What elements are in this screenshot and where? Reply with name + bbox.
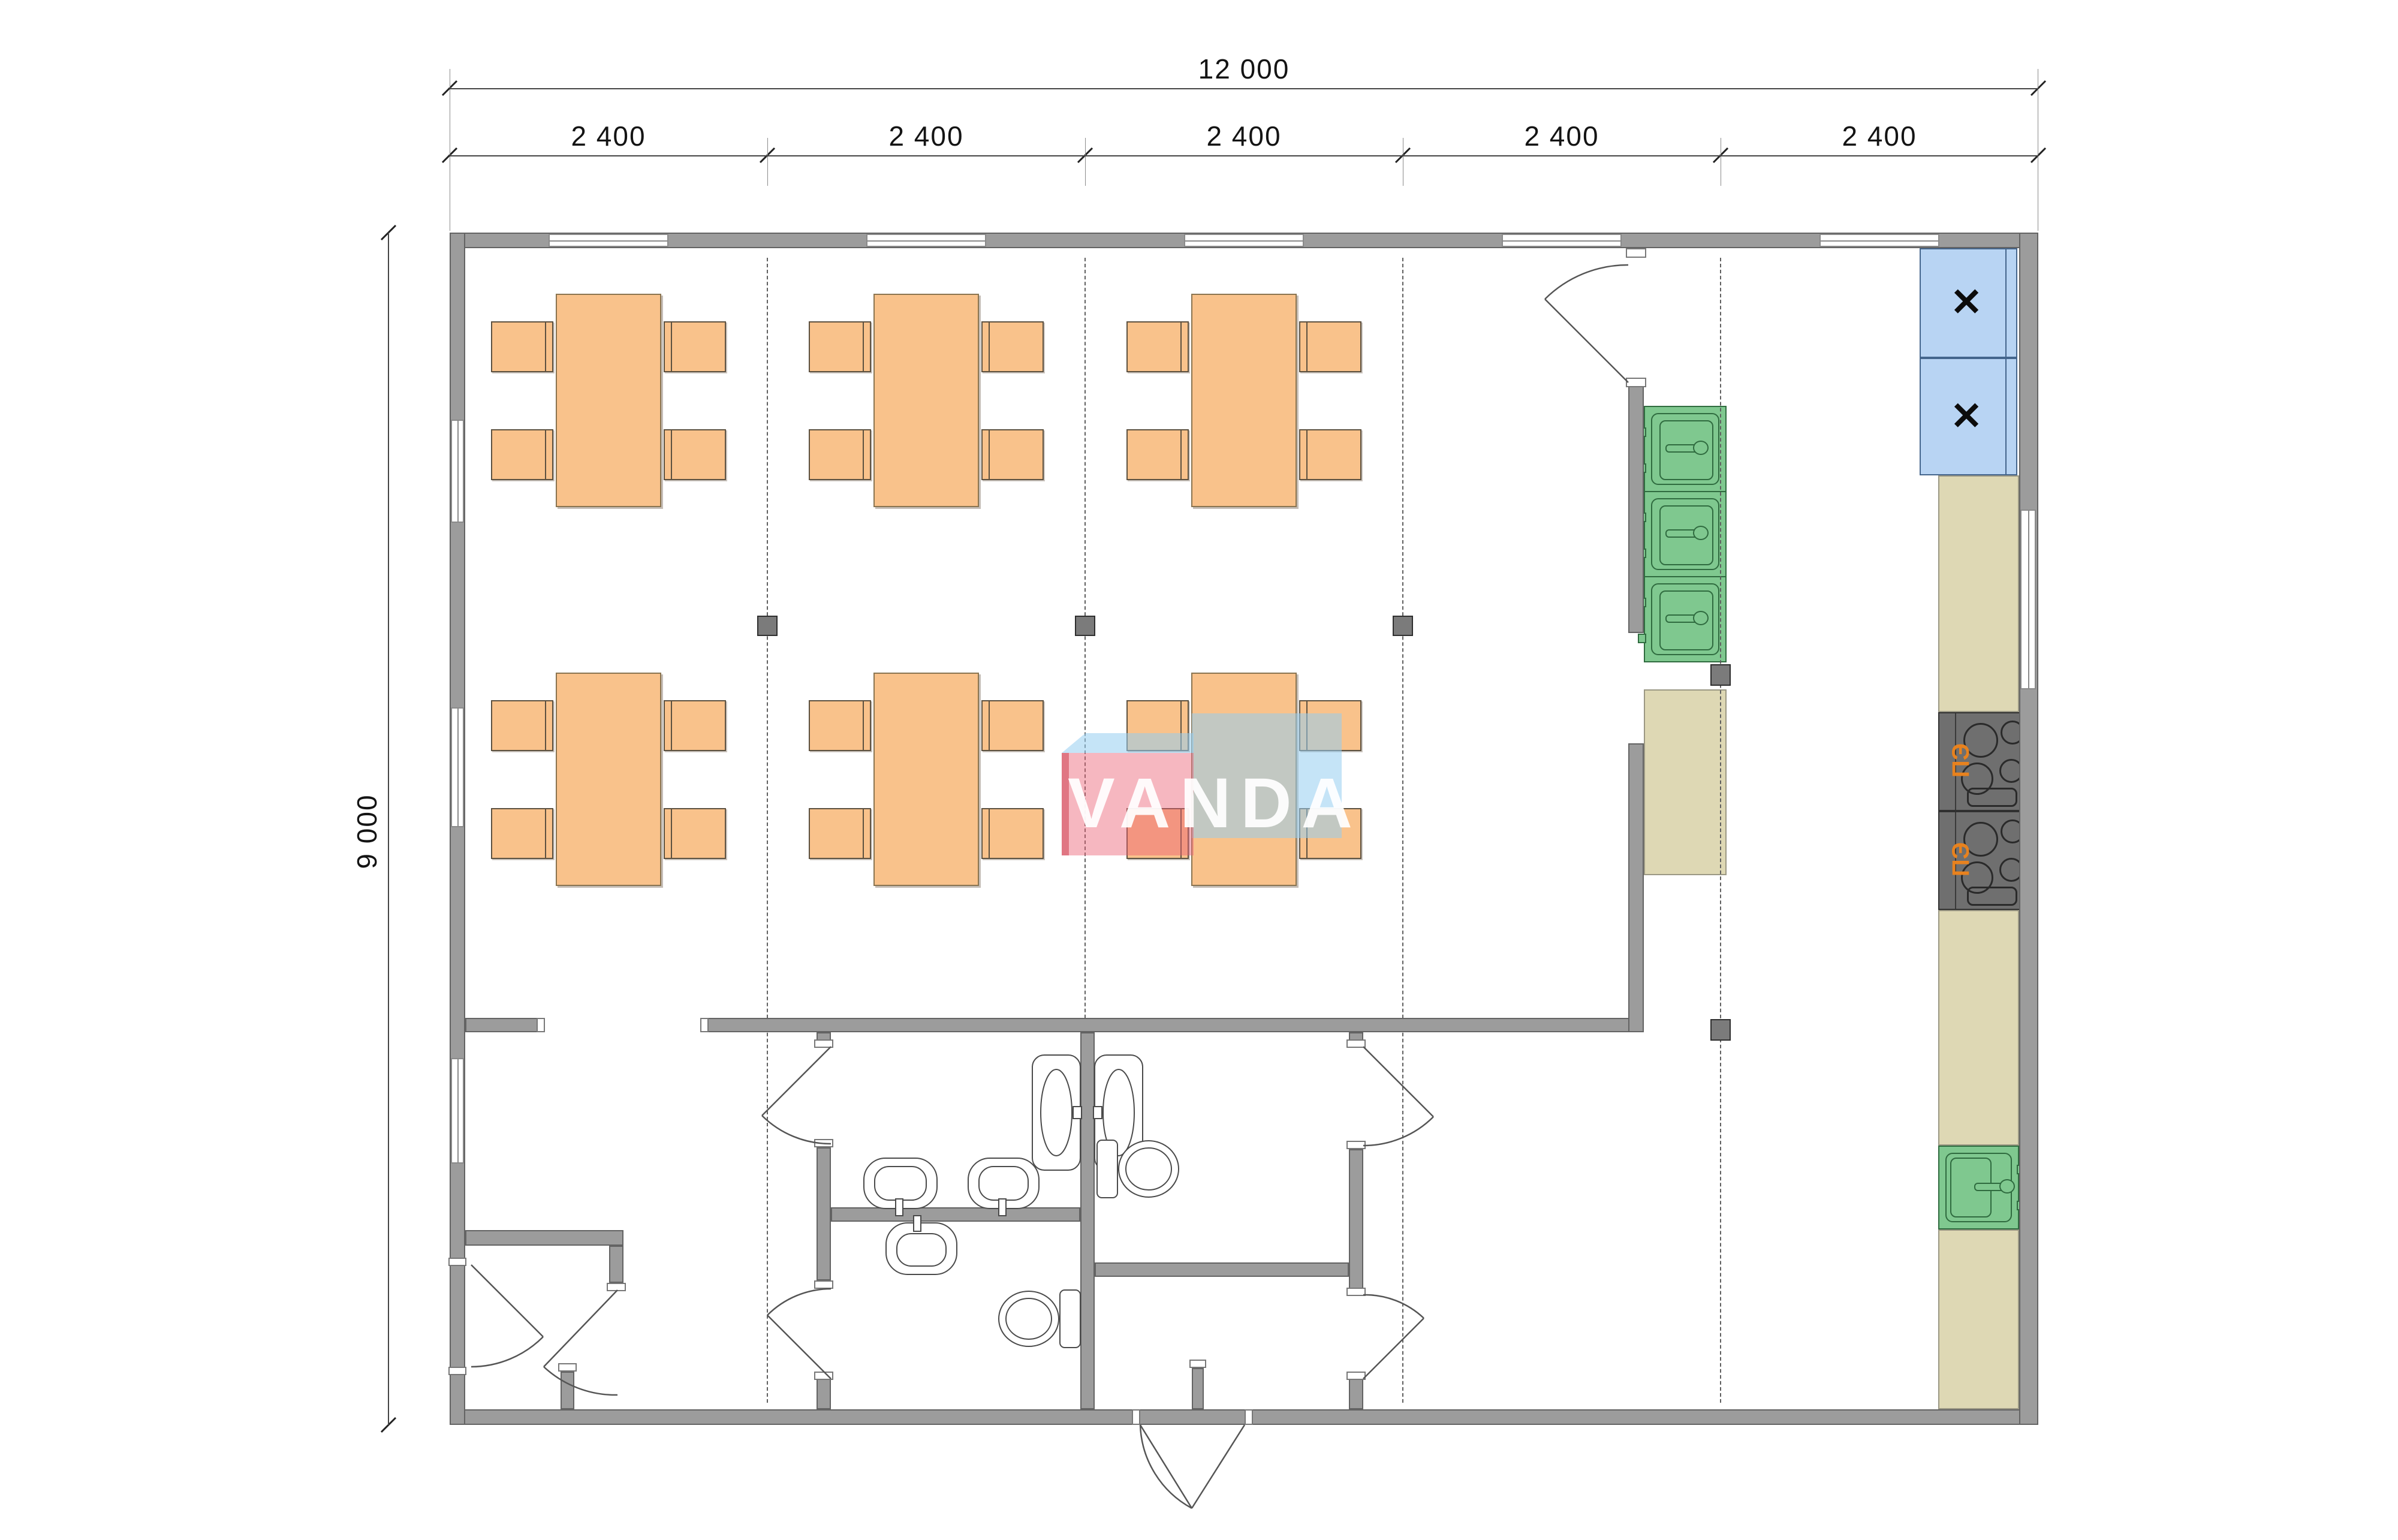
washbasin-right [1095,1055,1143,1170]
bath-left-partition [831,1207,1080,1222]
door-arc-bath-w2 [767,1289,831,1315]
chair [809,321,871,372]
dimension-label-module-4: 2 400 [1472,120,1652,152]
door-jamb-bath-e2a [1346,1288,1366,1296]
window-top-4 [1502,234,1622,247]
door-arc-kitchen [1545,265,1628,299]
chair [981,808,1044,859]
door-jamb-entrance-mullion [1189,1360,1206,1368]
door-jamb-porch-b [448,1367,466,1375]
door-leaf-cloakroom [544,1290,617,1367]
chair [491,700,553,751]
window-top-3 [1184,234,1304,247]
door-jamb-hall-opening-left [537,1018,545,1032]
chair [664,321,726,372]
door-jamb-bath-w1a [814,1039,833,1048]
chair [809,808,871,859]
bath-east-wall-bottom-stub [1349,1379,1363,1409]
dimension-line-total-height [388,233,389,1425]
window-top-1 [549,234,668,247]
chair [664,429,726,480]
column-kitchen-counter [1710,664,1731,686]
floor-plan-canvas: 12 000 2 400 2 400 2 400 2 400 2 400 9 0… [0,0,2398,1540]
column-grid-4 [1393,616,1413,636]
chair [809,429,871,480]
door-jamb-entrance-left [1132,1409,1140,1425]
column-grid-5-south [1710,1019,1731,1041]
chair [1299,429,1361,480]
dimension-label-module-5: 2 400 [1790,120,1969,152]
door-leaf-bath-w1 [762,1047,831,1116]
kitchen-sink-unit [1644,491,1727,577]
cloakroom-wall-horizontal [465,1230,623,1246]
chair [664,700,726,751]
door-jamb-cloakroom [607,1283,626,1291]
extension-line-grid-3 [1085,138,1086,186]
extension-line-grid-2 [767,138,768,186]
chair [491,429,553,480]
kitchen-sink-unit [1644,406,1727,492]
watermark-text: VANDA [1068,758,1331,848]
cabinet-x-icon: ✕ [1942,283,1990,321]
chair [664,808,726,859]
watermark-blue-flap [1062,733,1194,753]
extension-line-right [2038,69,2038,231]
sink-tap-knob-icon [1693,441,1709,455]
extension-line-left [450,69,450,231]
door-arc-porch [471,1337,543,1367]
exterior-wall-right [2019,233,2038,1425]
hall-bottom-wall-stub [465,1018,544,1032]
chair [1299,321,1361,372]
porch-stub-wall [561,1372,574,1409]
washbasin-bowl-icon [1041,1069,1072,1156]
chair [981,429,1044,480]
door-arc-cloakroom [544,1367,617,1395]
exterior-wall-bottom [450,1409,2038,1425]
hall-bottom-wall [701,1018,1644,1032]
chair [1126,321,1189,372]
dimension-label-module-3: 2 400 [1154,120,1334,152]
grid-line-2 [767,258,768,1403]
bath-right-partition [1095,1262,1349,1277]
dining-table [556,294,661,507]
toilet-tank-icon [1060,1290,1080,1348]
door-leaf-bath-e1 [1363,1047,1433,1117]
door-jamb-bath-e1a [1346,1039,1366,1048]
door-arc-bath-e1 [1363,1117,1433,1146]
toilet-bowl-rim-icon [1126,1148,1171,1190]
door-jamb-kitchen-top [1626,248,1646,258]
dining-table [873,294,979,507]
kitchen-counter-east-3 [1938,1229,2019,1409]
door-leaf-bath-e2 [1363,1318,1424,1379]
kitchen-counter-east-2 [1938,910,2019,1146]
dimension-label-total-width: 12 000 [1154,53,1334,85]
door-jamb-hall-opening-right [700,1018,709,1032]
washbasin-bowl-icon [897,1234,946,1266]
door-jamb-kitchen-bottom [1626,378,1646,387]
chair [1126,429,1189,480]
extension-line-grid-5 [1721,138,1721,186]
bath-west-wall-bottom-stub [817,1379,831,1409]
kitchen-divider-wall-upper [1628,378,1644,633]
window-right-1 [2020,510,2036,689]
toilet-bowl-rim-icon [1006,1298,1052,1339]
column-grid-2 [757,616,778,636]
window-top-2 [866,234,986,247]
door-jamb-porch-a [448,1258,466,1266]
chair [809,700,871,751]
kitchen-counter-east-1 [1938,475,2019,712]
washbasin [864,1158,937,1209]
stove-label: ПЭ [1948,743,1975,777]
grid-line-5 [1720,258,1721,1403]
door-arc-bath-e2 [1363,1295,1424,1318]
door-leaf-entrance-right [1192,1425,1245,1508]
electric-stove-2: ПЭ [1938,811,2026,910]
toilet-tank-icon [1097,1140,1117,1198]
washbasin-bowl-icon [979,1167,1028,1200]
watermark: VANDA [1062,710,1343,884]
electric-stove-1: ПЭ [1938,712,2026,811]
dimension-label-module-1: 2 400 [519,120,698,152]
sink-handle-icon [1638,634,1646,643]
window-top-5 [1819,234,1939,247]
bath-west-wall-mid [817,1147,831,1280]
door-jamb-bath-w2a [814,1280,833,1289]
toilet-bowl-icon [999,1291,1059,1346]
washbasin-left [1032,1055,1080,1170]
serving-counter [1644,689,1727,875]
dining-table [556,673,661,886]
chair [981,321,1044,372]
sink-tap-knob-icon [1693,611,1709,625]
door-jamb-bath-w2b [814,1372,833,1380]
door-jamb-entrance-right [1245,1409,1253,1425]
kitchen-sink-east [1938,1146,2019,1229]
cloakroom-wall-vertical [609,1246,623,1283]
dimension-line-modules [450,155,2038,156]
chair [491,321,553,372]
tap-icon [1093,1107,1102,1119]
grid-line-4 [1402,258,1403,1403]
washbasin-bowl-icon [875,1167,926,1200]
door-jamb-bath-w1b [814,1139,833,1147]
sink-tap-knob-icon [1999,1179,2015,1194]
stove-label: ПЭ [1948,842,1975,876]
column-grid-3 [1075,616,1095,636]
kitchen-sink-unit [1644,576,1727,662]
dimension-label-total-height: 9 000 [351,742,383,921]
bath-east-wall-mid [1349,1149,1363,1295]
washbasin [968,1158,1039,1209]
chair [981,700,1044,751]
exterior-wall-left [450,233,465,1425]
dimension-line-total-width [450,88,2038,89]
door-jamb-bath-e1b [1346,1141,1366,1149]
oven-door-icon [1967,887,2017,906]
entrance-mullion-stub [1192,1368,1204,1409]
toilet-bowl-icon [1119,1141,1179,1197]
extension-line-grid-4 [1403,138,1403,186]
door-leaf-bath-w2 [767,1315,831,1379]
chair [491,808,553,859]
window-left-1 [451,420,464,523]
door-leaf-porch [471,1265,543,1337]
kitchen-divider-wall-lower [1628,743,1644,1032]
sink-tap-knob-icon [1693,526,1709,540]
dining-table [1191,294,1297,507]
cabinet-x-icon: ✕ [1942,397,1990,435]
door-leaf-entrance-left [1140,1425,1192,1508]
window-left-3 [451,1058,464,1164]
dining-table [873,673,979,886]
window-left-2 [451,707,464,827]
washbasin-bowl-icon [1103,1069,1134,1156]
door-jamb-bath-e2b [1346,1372,1366,1380]
oven-door-icon [1967,788,2017,807]
washbasin [886,1223,957,1274]
door-jamb-porch-stub [558,1363,577,1372]
bath-center-wall [1080,1032,1095,1409]
door-arc-entrance [1140,1425,1192,1508]
door-leaf-kitchen [1545,299,1628,382]
dimension-label-module-2: 2 400 [836,120,1016,152]
